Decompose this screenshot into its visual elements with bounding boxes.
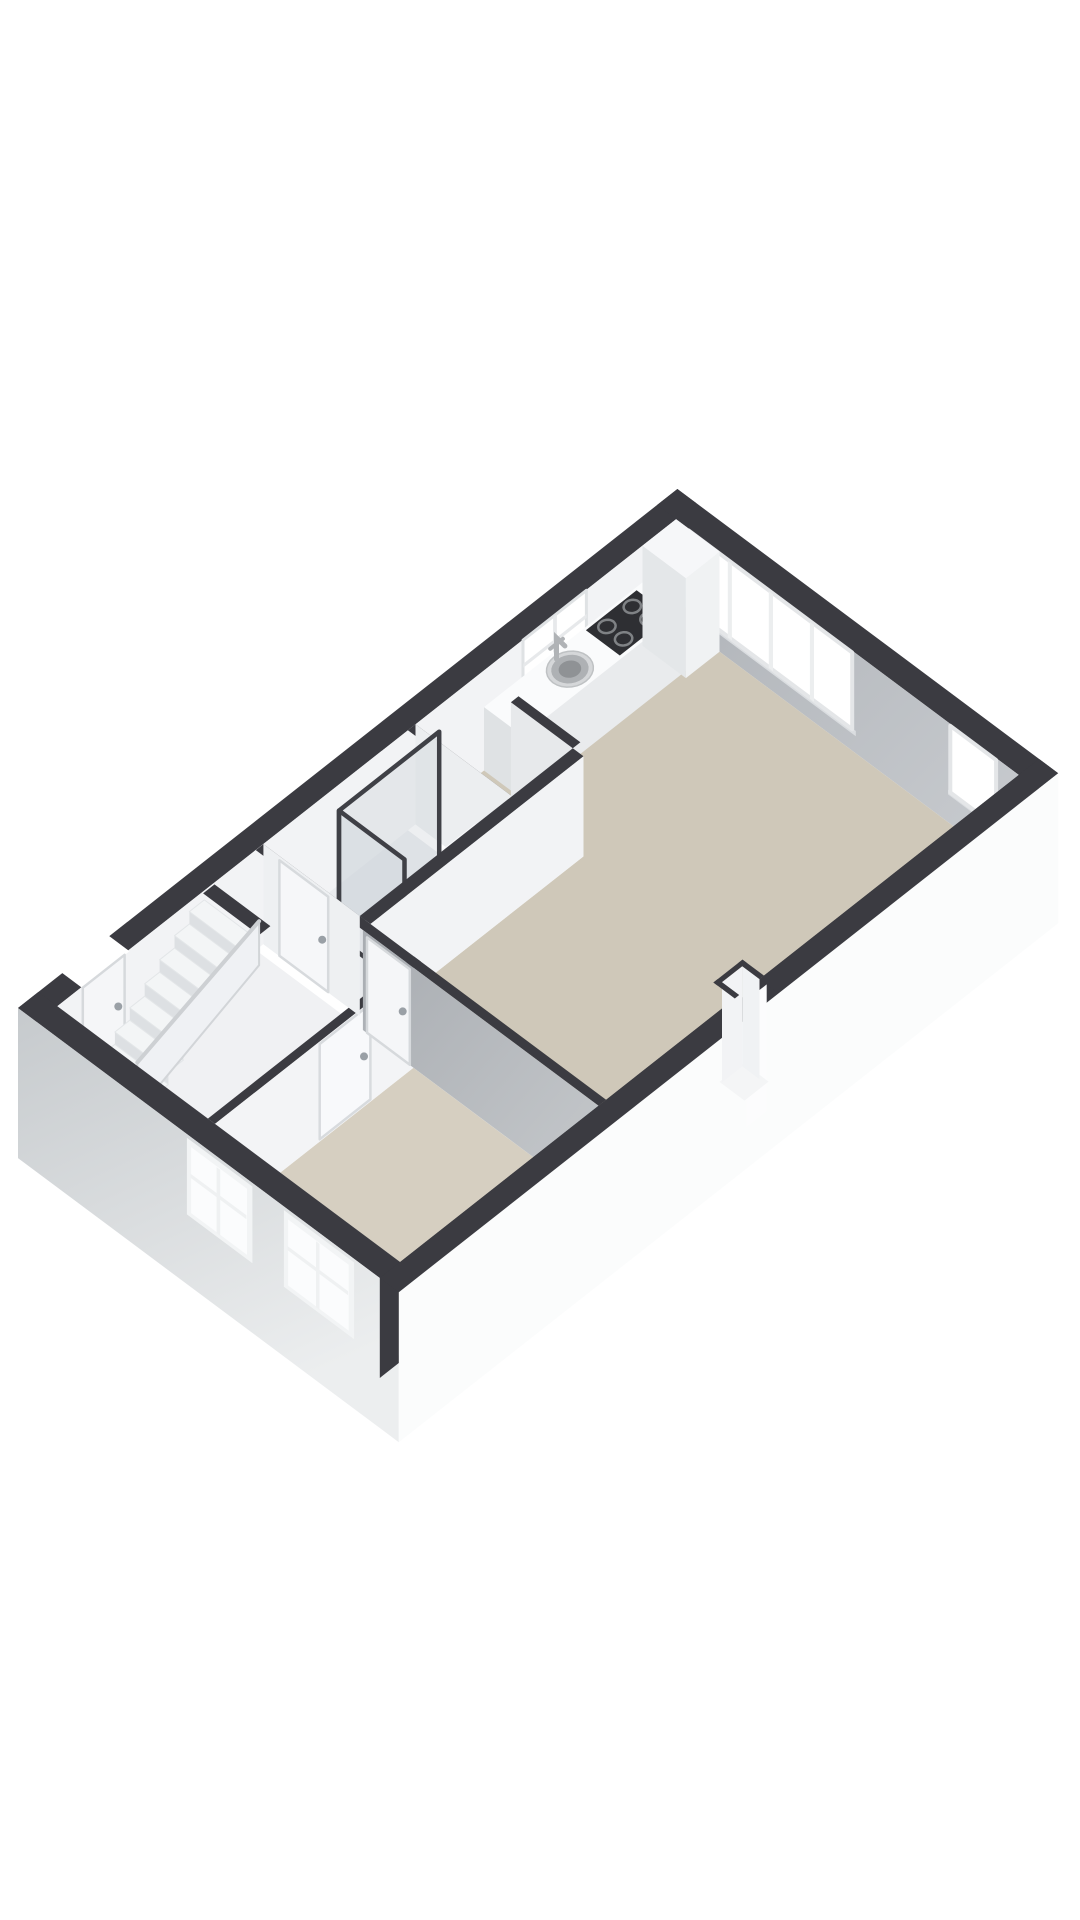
niche-inner-face: [722, 966, 742, 1082]
living-window-mullion-2: [769, 591, 773, 671]
niche-side-face: [742, 966, 759, 1079]
floor-plan-page: [0, 0, 1080, 1920]
bedroom-window-1-mullion: [217, 1167, 221, 1236]
scene-root: [18, 489, 1058, 1442]
living-window-mullion-3: [810, 622, 814, 702]
bedroom-window-2-mullion: [316, 1241, 320, 1310]
bedroom-door-handle: [360, 1052, 368, 1060]
bathroom-door-handle: [318, 936, 326, 944]
floor-plan-3d-render: [0, 0, 1080, 1920]
living-window-mullion-1: [728, 561, 732, 641]
front-door-handle: [114, 1003, 122, 1011]
living-room-door-handle: [399, 1007, 407, 1015]
